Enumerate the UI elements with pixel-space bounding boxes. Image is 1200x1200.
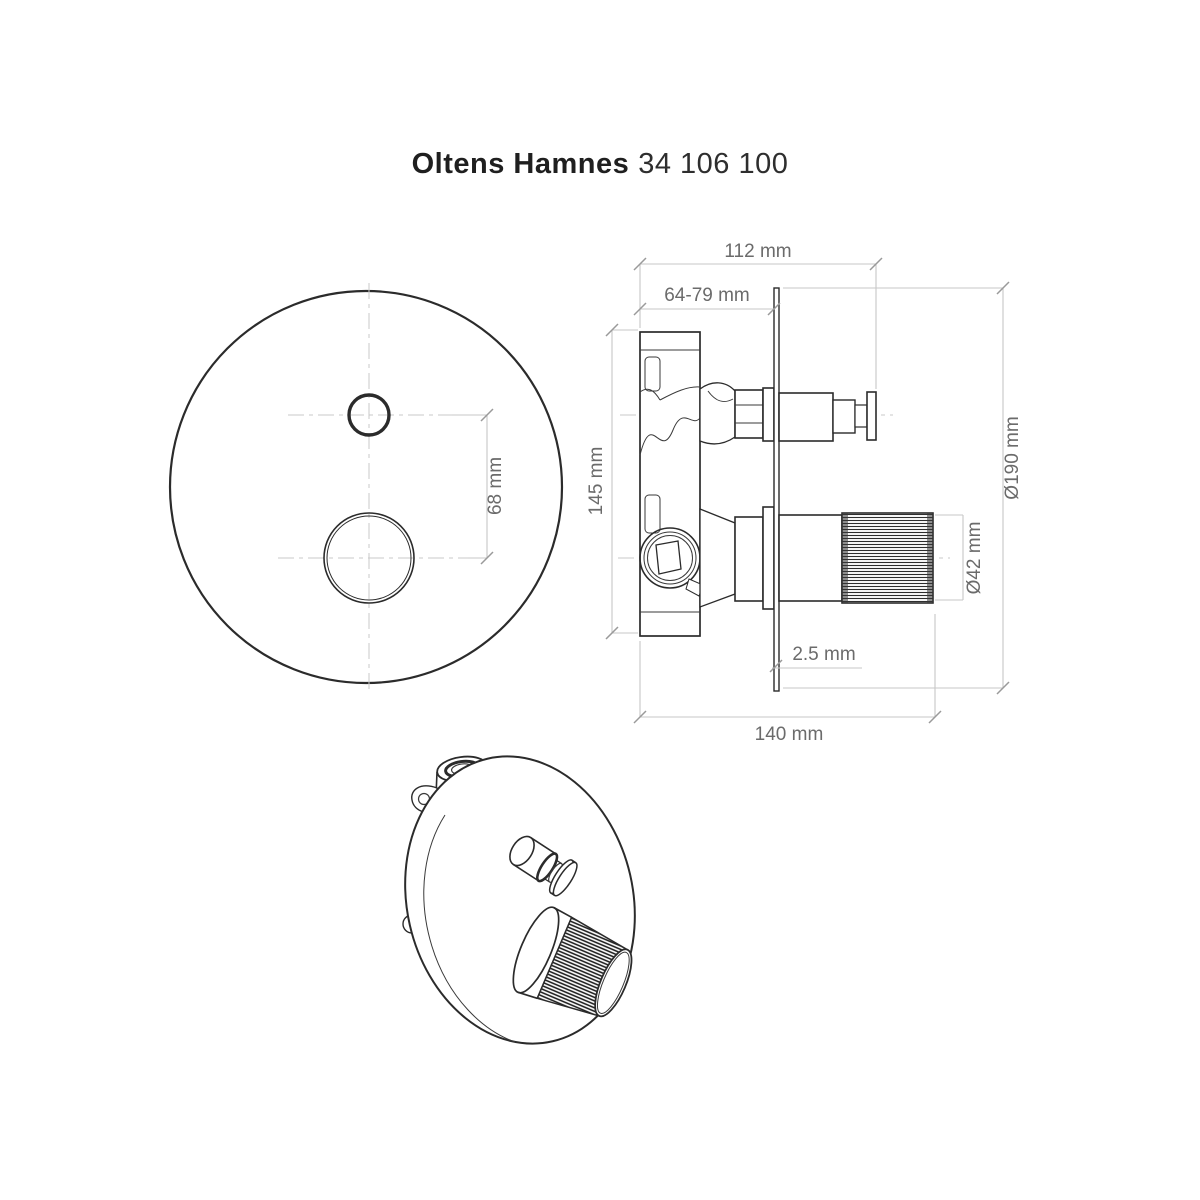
dimension-label-190mm: Ø190 mm <box>1002 416 1023 499</box>
dimension-label-68mm: 68 mm <box>485 457 506 515</box>
diagram-canvas: Oltens Hamnes34 106 100 68 mm <box>0 0 1200 1200</box>
front-view-drawing: 68 mm <box>170 283 562 691</box>
lower-outlet <box>700 507 774 609</box>
wall-plate <box>774 288 779 691</box>
perspective-view-drawing <box>377 733 662 1066</box>
dimension-label-140mm: 140 mm <box>755 724 824 745</box>
dimension-label-42mm: Ø42 mm <box>964 522 985 595</box>
knurled-grip <box>842 513 933 603</box>
side-view-drawing: 112 mm 64-79 mm 145 mm Ø190 mm Ø42 mm <box>586 241 1023 745</box>
dimension-68mm: 68 mm <box>452 409 506 564</box>
cover-plate-3d <box>377 733 662 1066</box>
dimension-label-145mm: 145 mm <box>586 447 607 516</box>
dimension-145mm: 145 mm <box>586 324 638 639</box>
diverter-button-side <box>779 392 876 441</box>
technical-drawing: 68 mm <box>0 0 1200 1200</box>
dimension-label-112mm: 112 mm <box>724 241 791 262</box>
dimension-label-2-5mm: 2.5 mm <box>792 644 855 665</box>
dimension-2-5mm: 2.5 mm <box>770 644 862 672</box>
upper-outlet <box>700 383 774 444</box>
dimension-label-64-79mm: 64-79 mm <box>664 285 750 306</box>
dimension-64-79mm: 64-79 mm <box>634 285 780 315</box>
dimension-190mm: Ø190 mm <box>783 282 1023 694</box>
mixer-knob-side <box>779 513 933 603</box>
